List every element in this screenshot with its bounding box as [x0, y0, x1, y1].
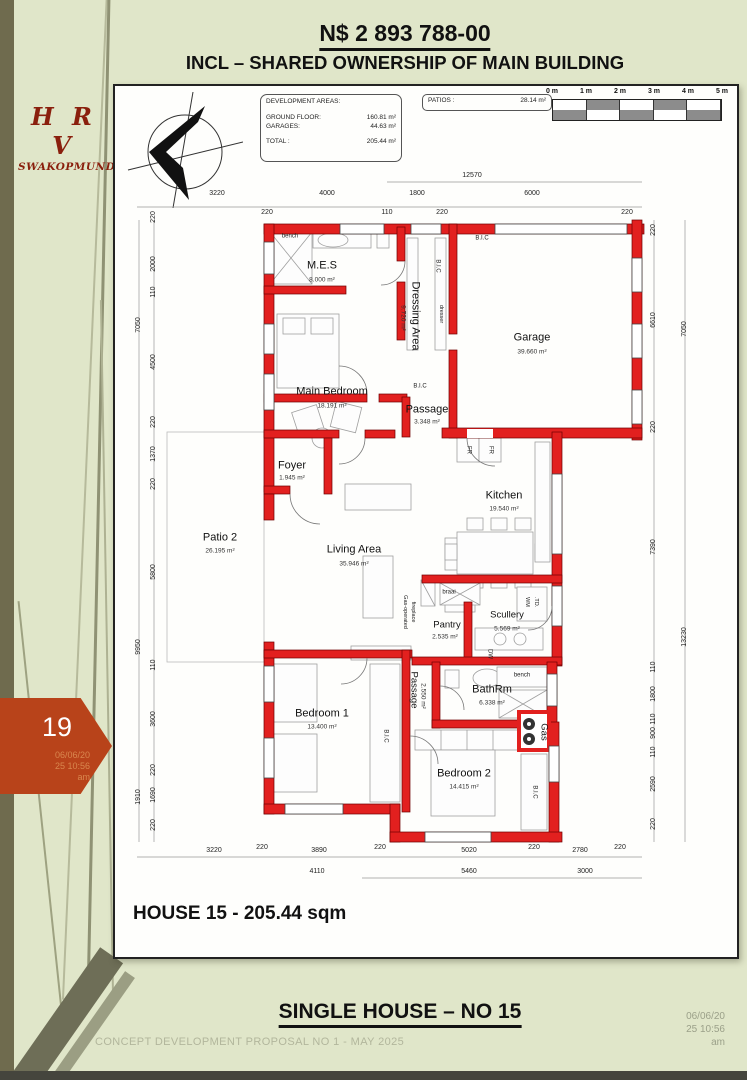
- badge-date-line: 06/06/20: [55, 750, 90, 761]
- dimension-label: 3600: [150, 711, 158, 727]
- dimension-label: 6000: [524, 190, 540, 198]
- footer-datetime: 06/06/20 25 10:56 am: [640, 1010, 725, 1049]
- dimension-label: 9950: [135, 639, 143, 655]
- dimension-label: 4000: [319, 190, 335, 198]
- dimension-label: 1800: [409, 190, 425, 198]
- fixture-label-bic: B.I.C: [382, 729, 389, 742]
- room-label-bedroom1: Bedroom 1: [295, 708, 349, 721]
- footer-ampm: am: [640, 1036, 725, 1049]
- room-label-foyer: Foyer: [278, 460, 306, 473]
- fixture-label-fireplace: Gas-operated: [402, 595, 408, 629]
- room-area-kitchen: 19.540 m²: [489, 505, 518, 512]
- dimension-label: 220: [650, 224, 658, 236]
- footer-title: SINGLE HOUSE – NO 15: [279, 1000, 522, 1028]
- fixture-label-bench: bench: [514, 673, 530, 680]
- dimension-label: 12570: [462, 172, 481, 180]
- grass-stripe: [100, 300, 114, 1000]
- footer-proposal-text: CONCEPT DEVELOPMENT PROPOSAL NO 1 - MAY …: [95, 1036, 404, 1048]
- room-area-passage: 3.348 m²: [414, 418, 440, 425]
- fixture-label-bic: B.I.C: [413, 384, 426, 391]
- dimension-label: 7390: [650, 539, 658, 555]
- dimension-label: 5020: [461, 847, 477, 855]
- page: N$ 2 893 788-00 INCL – SHARED OWNERSHIP …: [0, 0, 747, 1080]
- dimension-label: 220: [150, 819, 158, 831]
- dimension-label: 110: [150, 659, 158, 670]
- dimension-label: 220: [261, 209, 273, 217]
- room-label-garage: Garage: [514, 332, 551, 345]
- dimension-label: 110: [650, 746, 658, 757]
- dimension-label: 5800: [150, 564, 158, 580]
- dimension-label: 220: [650, 818, 658, 830]
- dimension-label: 110: [381, 209, 392, 217]
- dimension-label: 900: [650, 727, 658, 739]
- dimension-label: 1910: [135, 789, 143, 805]
- dimension-label: 4110: [309, 868, 324, 876]
- dimension-label: 1800: [650, 686, 658, 702]
- fixture-label-fr: FR: [487, 446, 494, 454]
- room-area-garage: 39.660 m²: [517, 348, 546, 355]
- fixture-label-dw: DW: [486, 649, 493, 659]
- dimension-label: 220: [150, 416, 158, 428]
- ownership-subtitle: INCL – SHARED OWNERSHIP OF MAIN BUILDING: [186, 52, 624, 74]
- dimension-label: 2780: [572, 847, 588, 855]
- dimension-label: 3890: [311, 847, 327, 855]
- dimension-label: 1370: [150, 446, 158, 462]
- room-label-bedroom2: Bedroom 2: [437, 768, 491, 781]
- fixture-label-fireplace: fireplace: [410, 602, 416, 623]
- room-label-main-bedroom: Main Bedroom: [296, 386, 368, 399]
- room-label-dressing: Dressing Area: [409, 281, 422, 350]
- fixture-label-fr: FR: [465, 446, 472, 454]
- badge-date: 06/06/20 25 10:56 am: [55, 750, 90, 783]
- room-label-scullery: Scullery: [490, 611, 524, 622]
- dimension-label: 220: [614, 844, 626, 852]
- room-area-living: 35.946 m²: [339, 560, 368, 567]
- dimension-label: 110: [150, 286, 158, 297]
- room-area-foyer: 1.945 m²: [279, 474, 305, 481]
- fixture-label-braai: braai: [442, 590, 455, 597]
- dimension-label: 220: [150, 478, 158, 490]
- floor-plan-drawing: [115, 86, 737, 953]
- dimension-label: 220: [621, 209, 633, 217]
- badge-number: 19: [42, 712, 72, 743]
- price-title: N$ 2 893 788-00: [319, 20, 490, 51]
- dimension-label: 1690: [150, 787, 158, 803]
- room-label-living: Living Area: [327, 544, 381, 557]
- left-olive-band: [0, 0, 14, 1080]
- room-label-pantry: Pantry: [433, 621, 460, 632]
- footer-time: 25 10:56: [640, 1023, 725, 1036]
- badge-time-line: 25 10:56: [55, 761, 90, 772]
- dimension-label: 3220: [209, 190, 225, 198]
- dimension-label: 220: [528, 844, 540, 852]
- room-area-dressing: 9.720 m²: [399, 305, 406, 331]
- room-label-passage: Passage: [406, 404, 449, 417]
- dimension-label: 110: [650, 713, 658, 724]
- room-area-patio2: 26.195 m²: [205, 547, 234, 554]
- dimension-label: 7050: [681, 321, 689, 337]
- dimension-label: 220: [150, 211, 158, 223]
- fixture-label-td: .TD.: [533, 597, 539, 607]
- grass-stripe: [18, 601, 65, 1029]
- room-label-mes: M.E.S: [307, 260, 337, 273]
- dimension-label: 110: [650, 661, 658, 672]
- room-label-kitchen: Kitchen: [486, 490, 523, 503]
- fixture-label-bic: B.I.C: [531, 785, 538, 798]
- dimension-label: 220: [374, 844, 386, 852]
- fixture-label-bic: B.I.C: [434, 259, 441, 272]
- room-area-mes: 8.000 m²: [309, 276, 335, 283]
- room-label-bathrm: BathRm: [472, 684, 512, 697]
- room-area-pantry: 2.535 m²: [432, 633, 458, 640]
- room-area-main-bedroom: 18.191 m²: [317, 402, 346, 409]
- dimension-label: 3000: [577, 868, 593, 876]
- room-label-patio2: Patio 2: [203, 532, 237, 545]
- room-label-passage2: Passage: [408, 672, 419, 709]
- dimension-label: 6610: [650, 312, 658, 328]
- door-gap: [467, 429, 493, 438]
- plan-sheet: DEVELOPMENT AREAS: GROUND FLOOR:160.81 m…: [113, 84, 739, 959]
- dimension-label: 2000: [150, 256, 158, 272]
- dimension-label: 4500: [150, 354, 158, 370]
- room-area-bedroom1: 13.400 m²: [307, 723, 336, 730]
- plan-title: HOUSE 15 - 205.44 sqm: [133, 903, 346, 925]
- room-area-bedroom2: 14.415 m²: [449, 783, 478, 790]
- hrv-logo: H R V SWAKOPMUND: [18, 102, 110, 173]
- room-area-passage2: 2.550 m²: [419, 683, 426, 709]
- dimension-label: 220: [256, 844, 268, 852]
- fixture-label-gas: Gas: [538, 723, 549, 740]
- dimension-label: 220: [436, 209, 448, 217]
- dimension-label: 7050: [135, 317, 143, 333]
- room-area-scullery: 5.569 m²: [494, 625, 520, 632]
- fixture-label-wm: WM: [524, 597, 530, 607]
- logo-initials: H R V: [18, 102, 110, 160]
- badge-ampm-line: am: [55, 772, 90, 783]
- footer-date: 06/06/20: [640, 1010, 725, 1023]
- fixture-label-dresser: dresser: [438, 305, 444, 323]
- dimension-label: 220: [650, 421, 658, 433]
- fixture-label-bic: B.I.C: [475, 236, 488, 243]
- room-area-bathrm: 6.338 m²: [479, 699, 505, 706]
- dimension-label: 3220: [206, 847, 222, 855]
- dimension-label: 220: [150, 764, 158, 776]
- dimension-label: 13230: [681, 627, 689, 646]
- bottom-bar: [0, 1071, 747, 1080]
- fixture-label-bench: bench: [282, 234, 298, 241]
- logo-city: SWAKOPMUND: [18, 161, 110, 173]
- dimension-label: 2590: [650, 776, 658, 792]
- dimension-label: 5460: [461, 868, 477, 876]
